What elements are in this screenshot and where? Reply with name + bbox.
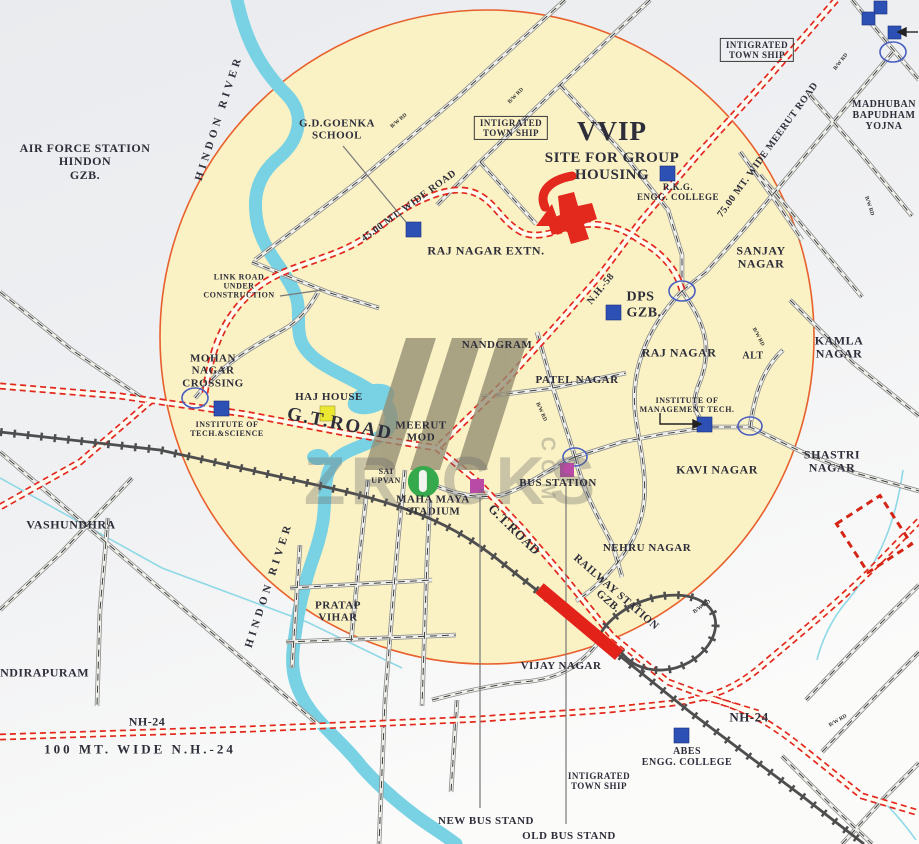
- inst-tech-science-marker: [214, 401, 229, 416]
- label-new-bus-stand: NEW BUS STAND: [438, 815, 534, 827]
- label-nh24-100mt-wide: 100 MT. WIDE N.H.-24: [44, 743, 236, 758]
- label-vashundhra: VASHUNDHRA: [26, 518, 115, 531]
- label-haj-house: HAJ HOUSE: [295, 391, 363, 403]
- label-dps-gzb: DPS GZB.: [626, 289, 661, 320]
- label-institute-of-management: INSTITUTE OF MANAGEMENT TECH.: [640, 397, 735, 415]
- label-bus-station: BUS STATION: [519, 477, 597, 489]
- label-integrated-township-bottom: INTIGRATED TOWN SHIP: [568, 771, 630, 791]
- label-nehru-nagar: NEHRU NAGAR: [603, 542, 691, 554]
- label-abes-engg-college: ABES ENGG. COLLEGE: [642, 746, 732, 768]
- label-alt: ALT: [742, 350, 763, 361]
- label-old-bus-stand: OLD BUS STAND: [522, 830, 616, 842]
- label-link-road: LINK ROAD UNDER CONSTRUCTION: [203, 274, 274, 301]
- label-nandgram: NANDGRAM: [462, 339, 533, 351]
- label-raj-nagar-extn: RAJ NAGAR EXTN.: [427, 244, 544, 257]
- label-sai-upvan: SAI UPVAN: [371, 468, 400, 486]
- label-vijay-nagar: VIJAY NAGAR: [521, 660, 602, 672]
- label-vvip-site-subtitle: SITE FOR GROUP HOUSING: [545, 150, 680, 184]
- label-air-force-station: AIR FORCE STATION HINDON GZB.: [20, 142, 151, 182]
- abes-college-marker: [674, 728, 689, 743]
- label-integrated-township-top-center: INTIGRATED TOWN SHIP: [474, 116, 548, 140]
- label-raj-nagar: RAJ NAGAR: [642, 346, 717, 359]
- label-nh24-west: NH-24: [129, 715, 166, 728]
- gd-goenka-school-marker: [406, 222, 421, 237]
- label-madhuban-bapudham: MADHUBAN BAPUDHAM YOJNA: [852, 99, 916, 133]
- dps-marker: [606, 305, 621, 320]
- label-patel-nagar: PATEL NAGAR: [535, 374, 618, 386]
- label-mohan-nagar-crossing: MOHAN NAGAR CROSSING: [182, 353, 243, 390]
- radius-circle: [160, 10, 814, 664]
- label-gd-goenka-school: G.D.GOENKA SCHOOL: [299, 118, 375, 143]
- label-meerut-mod: MEERUT MOD: [395, 420, 446, 445]
- label-shastri-nagar: SHASTRI NAGAR: [789, 449, 876, 476]
- township-marker-1: [874, 1, 887, 14]
- label-indirapuram: INDIRAPURAM: [0, 666, 89, 679]
- label-integrated-township-top-right: INTIGRATED TOWN SHIP: [720, 38, 794, 62]
- label-maha-maya-stadium: MAHA MAYA STADIUM: [396, 494, 470, 519]
- label-vvip-site-title: VVIP: [577, 116, 647, 146]
- label-institute-of-tech-science: INSTITUTE OF TECH.&SCIENCE: [190, 421, 263, 439]
- label-nh24-east: NH-24: [729, 711, 768, 726]
- watermark-com: COM: [536, 437, 559, 508]
- label-kavi-nagar: KAVI NAGAR: [676, 463, 758, 476]
- township-marker-2: [862, 12, 875, 25]
- watermark-green-dot-icon: [408, 466, 439, 497]
- label-sanjay-nagar: SANJAY NAGAR: [736, 245, 785, 272]
- label-kamla-nagar: KAMLA NAGAR: [799, 335, 879, 362]
- label-rkg-engg-college: R.K.G. ENGG. COLLEGE: [637, 182, 719, 202]
- label-pratap-vihar: PRATAP VIHAR: [315, 600, 361, 625]
- location-map: ZR CKS COM AIR FORCE STATION HINDON GZB.…: [0, 0, 919, 844]
